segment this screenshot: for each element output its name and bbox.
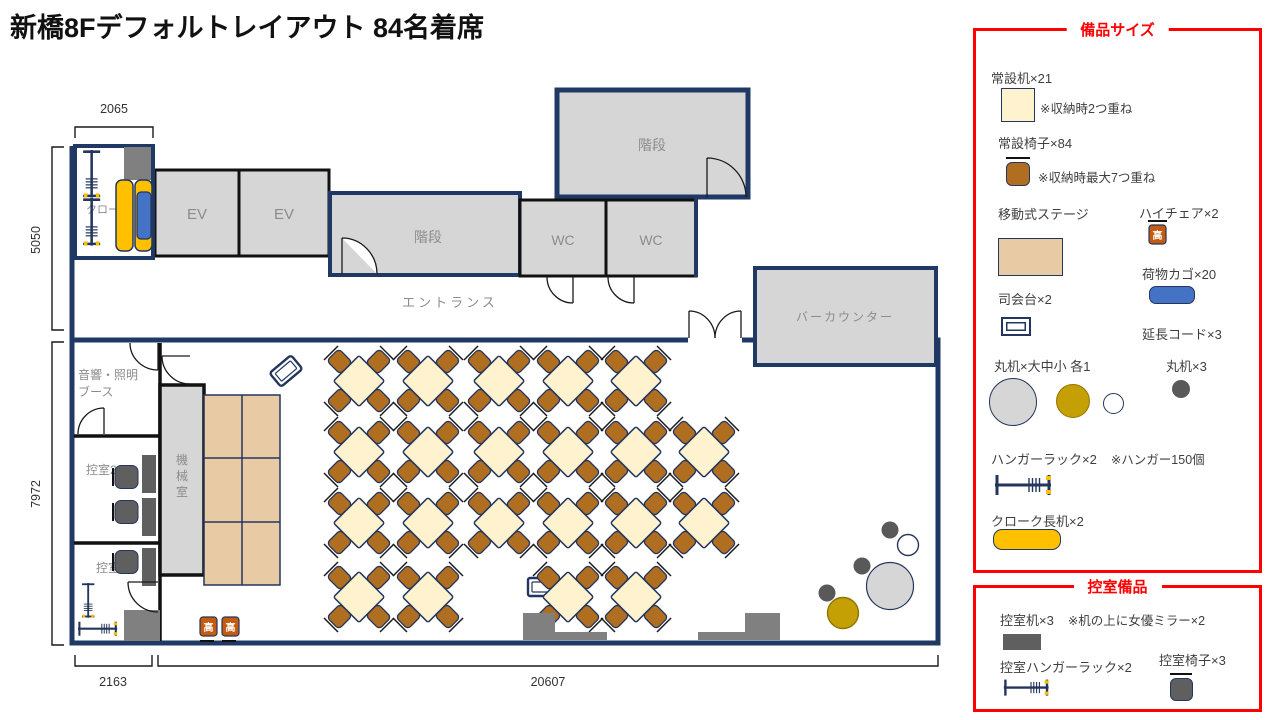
basket-swatch [1149,286,1195,304]
round-table-medium-swatch [1056,384,1090,418]
room-ev1: EV [155,170,239,256]
high-chair-swatch [1146,219,1170,249]
dim-bottom-left: 2163 [99,675,127,689]
luggage-basket [137,192,151,239]
stack-line [1006,157,1030,159]
hall-double-door [688,311,742,344]
fixed-desk-swatch [1001,88,1035,122]
legend-equipment-title: 備品サイズ [1066,19,1169,40]
room-label-line1: 音響・照明 [78,367,138,382]
legend-waiting-title: 控室備品 [1073,576,1161,597]
legend-item-basket: 荷物カゴ×20 [1142,264,1216,283]
room-label: WC [639,232,662,248]
room-cloak: クローク [75,146,153,258]
stack-line [1170,673,1192,675]
bar-counter: バーカウンター [755,268,936,365]
room-label: 階段 [414,229,442,245]
legend-waiting-panel: 控室備品 控室机×3※机の上に女優ミラー×2 控室ハンガーラック×2 控室椅子×… [973,585,1262,712]
stage-swatch [998,238,1063,276]
round-table-large-swatch [989,378,1037,426]
waiting-desk-label: 控室机×3 [1000,613,1054,628]
room-wc2: WC [606,198,696,277]
gray-block [124,610,160,641]
room-label-char2: 械 [176,468,188,483]
fixed-desk-note: ※収納時2つ重ね [1040,98,1132,117]
waiting-chair [113,551,138,574]
dim-bottom-main: 20607 [531,675,566,689]
room-ev2: EV [239,170,329,256]
room-label-line2: ブース [78,384,113,399]
legend-item-fixed-chair: 常設椅子×84 [998,133,1072,152]
room-label-char3: 室 [176,484,188,499]
legend-item-waiting-chair: 控室椅子×3 [1159,650,1226,669]
legend-item-cloak-table: クローク長机×2 [991,511,1084,530]
cloak-table-swatch [993,529,1061,550]
waiting-desk-swatch [1003,634,1041,650]
waiting-chair [113,501,138,524]
room-label: バーカウンター [796,310,894,324]
legend-item-stage: 移動式ステージ [998,204,1089,223]
legend-item-extension-cord: 延長コード×3 [1142,324,1222,343]
room-wc1: WC [520,200,606,276]
waiting-desk [142,498,156,536]
legend-item-hanger-rack: ハンガーラック×2※ハンガー150個 [991,449,1205,468]
hanger-rack-note: ※ハンガー150個 [1111,453,1205,467]
waiting-hanger-swatch [1003,678,1051,698]
waiting-desk [142,455,156,493]
waiting-desk-note: ※机の上に女優ミラー×2 [1068,614,1205,628]
dim-top: 2065 [100,102,128,116]
hanger-rack-swatch [994,473,1054,497]
dim-left-lower: 7972 [29,480,43,508]
entrance-label: エントランス [402,295,498,310]
screenshot-root: 新橋8Fデフォルトレイアウト 84名着席 [0,0,1280,720]
round-table-small-swatch [1103,393,1124,414]
room-label: WC [551,232,574,248]
dim-left-upper: 5050 [29,226,43,254]
room-machine: 機 械 室 [160,356,204,575]
mobile-stage [204,395,280,585]
gray-block [124,147,151,180]
legend-item-round-tables: 丸机×大中小 各1 [994,356,1090,375]
legend-item-round-table-dark: 丸机×3 [1166,356,1207,375]
fixed-chair-note: ※収納時最大7つ重ね [1038,167,1155,186]
fixed-chair-swatch [1006,162,1030,186]
mc-stand-swatch [1001,317,1031,336]
legend-item-fixed-desk: 常設机×21 [991,68,1052,87]
room-stairs-mid: 階段 [330,193,520,275]
room-stairs-top: 階段 [557,90,748,197]
waiting-chair [113,466,138,489]
legend-equipment-panel: 備品サイズ 常設机×21 ※収納時2つ重ね 常設椅子×84 ※収納時最大7つ重ね… [973,28,1262,573]
hanger-rack-label: ハンガーラック×2 [991,452,1097,467]
wc-door-arcs [547,277,634,303]
cloak-table [116,180,133,251]
waiting-chair-swatch [1170,678,1193,701]
legend-item-waiting-desk: 控室机×3※机の上に女優ミラー×2 [1000,610,1205,629]
round-table-dark-swatch [1172,380,1190,398]
legend-item-mc-stand: 司会台×2 [998,289,1052,308]
waiting-desk [142,548,156,586]
room-label-char1: 機 [176,452,188,467]
room-label: EV [274,206,294,223]
legend-item-waiting-hanger: 控室ハンガーラック×2 [1000,657,1132,676]
room-label: 階段 [638,137,666,153]
room-label: EV [187,206,207,223]
